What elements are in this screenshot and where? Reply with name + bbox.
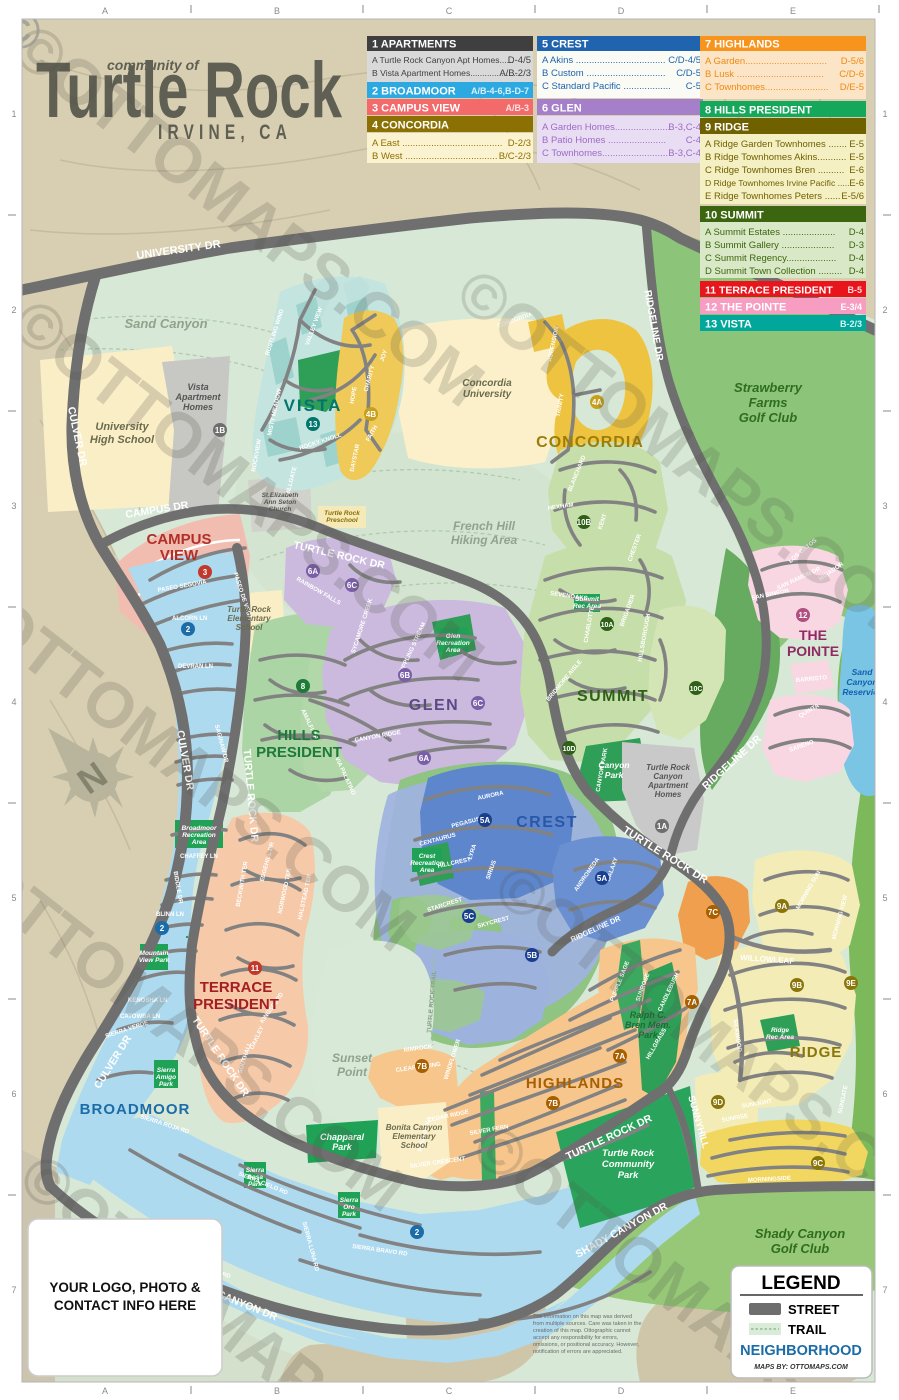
svg-text:RIDGE: RIDGE <box>790 1044 843 1061</box>
svg-text:5C: 5C <box>464 912 474 921</box>
svg-text:5A: 5A <box>480 816 490 825</box>
svg-text:A: A <box>102 6 108 16</box>
svg-text:Community: Community <box>602 1159 655 1170</box>
svg-text:9 RIDGE: 9 RIDGE <box>705 122 749 134</box>
svg-text:D: D <box>618 6 625 16</box>
svg-text:B Patio Homes ..............: B Patio Homes ...................... <box>542 135 666 146</box>
svg-text:3: 3 <box>203 568 208 577</box>
svg-text:11: 11 <box>251 964 260 973</box>
svg-text:ALCORN LN: ALCORN LN <box>172 616 207 622</box>
svg-text:B Ridge Townhomes Akins......: B Ridge Townhomes Akins........... <box>705 152 846 163</box>
svg-text:7: 7 <box>11 1285 16 1295</box>
svg-text:9E: 9E <box>846 979 856 988</box>
svg-text:A/B-3: A/B-3 <box>505 103 529 113</box>
svg-text:GLEN: GLEN <box>409 697 459 714</box>
svg-text:13 VISTA: 13 VISTA <box>705 319 752 331</box>
svg-text:Bonita Canyon: Bonita Canyon <box>386 1123 443 1132</box>
svg-text:D-2/3: D-2/3 <box>508 138 531 149</box>
svg-text:4 CONCORDIA: 4 CONCORDIA <box>372 120 449 132</box>
svg-text:2: 2 <box>11 305 16 315</box>
svg-text:B: B <box>274 1386 280 1396</box>
svg-text:1 APARTMENTS: 1 APARTMENTS <box>372 39 456 51</box>
svg-text:CHAFFEY LN: CHAFFEY LN <box>180 854 218 860</box>
svg-text:E-6: E-6 <box>849 165 864 176</box>
svg-text:5A: 5A <box>597 874 607 883</box>
svg-text:YOUR LOGO, PHOTO &: YOUR LOGO, PHOTO & <box>49 1280 201 1295</box>
svg-text:PRESIDENT: PRESIDENT <box>256 744 342 761</box>
svg-text:A Akins .....................: A Akins ................................… <box>542 55 666 66</box>
svg-text:5B: 5B <box>527 951 537 960</box>
svg-text:7C: 7C <box>708 908 718 917</box>
svg-text:HILLS: HILLS <box>277 727 320 744</box>
svg-text:LEGEND: LEGEND <box>761 1273 840 1294</box>
svg-text:A Garden.....................: A Garden............................... <box>705 56 827 67</box>
svg-text:D-4: D-4 <box>849 266 864 277</box>
svg-text:A: A <box>102 1386 108 1396</box>
svg-text:E-6: E-6 <box>849 178 864 189</box>
svg-text:Ridge: Ridge <box>771 1027 789 1034</box>
svg-text:Park: Park <box>605 770 625 780</box>
svg-text:9D: 9D <box>713 1098 723 1107</box>
svg-text:7 HIGHLANDS: 7 HIGHLANDS <box>705 39 780 51</box>
svg-text:B Vista Apartment Homes......: B Vista Apartment Homes.................… <box>372 68 518 78</box>
svg-text:C: C <box>446 6 453 16</box>
svg-text:Canyon: Canyon <box>653 772 682 781</box>
svg-text:10 SUMMIT: 10 SUMMIT <box>705 210 764 222</box>
svg-text:Hiking Area: Hiking Area <box>451 533 518 547</box>
svg-text:Bosa: Bosa <box>247 1174 263 1181</box>
svg-text:Elementary: Elementary <box>392 1132 436 1141</box>
svg-text:VIEW: VIEW <box>160 547 199 564</box>
svg-text:CONTACT INFO HERE: CONTACT INFO HERE <box>54 1298 196 1313</box>
svg-text:Sand Canyon: Sand Canyon <box>124 316 207 331</box>
svg-text:C-4: C-4 <box>686 135 701 146</box>
svg-text:12: 12 <box>799 611 808 620</box>
svg-text:THE: THE <box>799 627 827 643</box>
svg-text:NEIGHBORHOOD: NEIGHBORHOOD <box>740 1343 862 1359</box>
svg-text:E-5: E-5 <box>849 152 864 163</box>
svg-text:E: E <box>790 1386 796 1396</box>
svg-text:Park: Park <box>159 1081 173 1088</box>
svg-text:C/D-6: C/D-6 <box>839 69 864 80</box>
svg-text:notification of errors are app: notification of errors are appreciated. <box>533 1349 623 1355</box>
svg-text:2: 2 <box>160 924 165 933</box>
svg-text:Rec Area: Rec Area <box>573 603 601 610</box>
svg-text:Apartment: Apartment <box>647 781 688 790</box>
svg-text:C Townhomes..................: C Townhomes........................ <box>705 82 828 93</box>
svg-text:A/B-4-6,B-D-7: A/B-4-6,B-D-7 <box>471 86 529 96</box>
svg-text:Sierra: Sierra <box>246 1167 265 1174</box>
svg-text:6: 6 <box>11 1089 16 1099</box>
svg-text:omissions, or positional accur: omissions, or positional accuracy. Howev… <box>533 1342 640 1348</box>
svg-text:4: 4 <box>882 697 887 707</box>
svg-text:Park: Park <box>248 1181 262 1188</box>
svg-text:10B: 10B <box>577 518 592 527</box>
svg-text:2 BROADMOOR: 2 BROADMOOR <box>372 86 456 98</box>
svg-text:A Turtle Rock Canyon Apt Home: A Turtle Rock Canyon Apt Homes...... <box>372 55 514 65</box>
svg-text:3: 3 <box>882 501 887 511</box>
svg-text:A Summit Estates ............: A Summit Estates .................... <box>705 227 835 238</box>
svg-text:TERRACE: TERRACE <box>200 979 273 996</box>
svg-text:2: 2 <box>415 1228 420 1237</box>
svg-text:B Lusk .....................: B Lusk ................................. <box>705 69 824 80</box>
svg-text:Sand: Sand <box>852 667 874 677</box>
svg-text:VISTA: VISTA <box>284 396 343 415</box>
svg-text:1: 1 <box>11 109 16 119</box>
svg-text:Park: Park <box>342 1211 356 1218</box>
svg-text:6 GLEN: 6 GLEN <box>542 103 582 115</box>
svg-text:C Summit Regency.............: C Summit Regency................... <box>705 253 836 264</box>
svg-text:8: 8 <box>301 682 306 691</box>
svg-text:Elementary: Elementary <box>227 614 271 623</box>
svg-text:A Ridge Garden Townhomes ...: A Ridge Garden Townhomes ....... <box>705 139 847 150</box>
svg-text:D Summit Town Collection ....: D Summit Town Collection ......... <box>705 266 842 277</box>
svg-text:A/B-2/3: A/B-2/3 <box>499 68 531 79</box>
svg-text:9A: 9A <box>777 902 787 911</box>
svg-text:B-3,C-4: B-3,C-4 <box>668 148 701 159</box>
svg-text:5 CREST: 5 CREST <box>542 39 589 51</box>
svg-text:C Ridge Townhomes Bren .....: C Ridge Townhomes Bren .......... <box>705 165 844 176</box>
svg-text:MAPS BY: OTTOMAPS.COM: MAPS BY: OTTOMAPS.COM <box>754 1364 848 1371</box>
svg-text:7B: 7B <box>548 1099 558 1108</box>
svg-text:2: 2 <box>186 625 191 634</box>
svg-text:B/C-2/3: B/C-2/3 <box>499 151 531 162</box>
svg-text:6: 6 <box>882 1089 887 1099</box>
svg-text:7: 7 <box>882 1285 887 1295</box>
svg-text:C-5: C-5 <box>686 81 701 92</box>
svg-text:BLINN LN: BLINN LN <box>156 912 184 918</box>
svg-text:Crest: Crest <box>419 853 436 860</box>
svg-text:5: 5 <box>11 893 16 903</box>
svg-text:B Custom ...................: B Custom .............................. <box>542 68 666 79</box>
svg-text:10C: 10C <box>690 686 703 693</box>
svg-text:School: School <box>236 623 263 632</box>
svg-text:9B: 9B <box>792 981 802 990</box>
svg-text:D-5/6: D-5/6 <box>841 56 864 67</box>
svg-text:BROADMOOR: BROADMOOR <box>80 1101 191 1118</box>
svg-text:D/E-5: D/E-5 <box>840 82 864 93</box>
svg-text:7B: 7B <box>417 1062 427 1071</box>
svg-text:B-5: B-5 <box>847 285 862 295</box>
svg-text:E: E <box>790 6 796 16</box>
svg-text:4B: 4B <box>366 410 376 419</box>
svg-text:Canyon: Canyon <box>846 677 877 687</box>
svg-text:The information on this map wa: The information on this map was derived <box>533 1314 632 1320</box>
svg-text:C Townhomes..................: C Townhomes......................... <box>542 148 668 159</box>
svg-text:E-5/6: E-5/6 <box>841 191 864 202</box>
svg-text:D: D <box>618 1386 625 1396</box>
svg-text:CREST: CREST <box>516 814 578 831</box>
svg-text:STREET: STREET <box>788 1302 839 1317</box>
svg-text:CAMPUS: CAMPUS <box>146 531 211 548</box>
svg-text:B Summit Gallery ...........: B Summit Gallery .................... <box>705 240 834 251</box>
svg-text:B West .....................: B West .................................… <box>372 151 497 162</box>
svg-text:TRAIL: TRAIL <box>788 1322 826 1337</box>
svg-text:Summit: Summit <box>575 596 600 603</box>
svg-text:B: B <box>274 6 280 16</box>
svg-text:accept any responsibility for: accept any responsibility for errors, <box>533 1335 619 1341</box>
svg-text:2: 2 <box>882 305 887 315</box>
svg-text:E-3/4: E-3/4 <box>840 302 862 312</box>
svg-text:13: 13 <box>309 420 318 429</box>
svg-text:Sierra: Sierra <box>157 1067 176 1074</box>
svg-text:Sunset: Sunset <box>332 1051 373 1065</box>
svg-text:4: 4 <box>11 697 16 707</box>
svg-text:SUMMIT: SUMMIT <box>577 688 649 705</box>
svg-text:Park: Park <box>618 1170 639 1181</box>
svg-text:E Ridge Townhomes Peters ...: E Ridge Townhomes Peters ...... <box>705 191 841 202</box>
svg-text:Farms: Farms <box>748 395 787 410</box>
svg-text:Golf Club: Golf Club <box>771 1241 830 1256</box>
svg-text:Strawberry: Strawberry <box>734 380 803 395</box>
svg-text:Amigo: Amigo <box>155 1074 176 1081</box>
svg-text:8 HILLS PRESIDENT: 8 HILLS PRESIDENT <box>705 105 812 117</box>
svg-text:Area: Area <box>419 867 435 874</box>
svg-text:Recreation: Recreation <box>182 832 216 839</box>
svg-text:D-4: D-4 <box>849 253 864 264</box>
svg-text:HIGHLANDS: HIGHLANDS <box>526 1075 624 1092</box>
svg-text:D-4/5: D-4/5 <box>508 55 531 66</box>
svg-text:3 CAMPUS VIEW: 3 CAMPUS VIEW <box>372 103 461 115</box>
svg-text:C/D-4/5: C/D-4/5 <box>668 55 701 66</box>
svg-text:D Ridge Townhomes Irvine Paci: D Ridge Townhomes Irvine Pacific ...... <box>705 178 852 188</box>
svg-text:1: 1 <box>882 109 887 119</box>
svg-text:D-3: D-3 <box>849 240 864 251</box>
svg-text:Turtle Rock: Turtle Rock <box>602 1148 655 1159</box>
svg-text:C: C <box>446 1386 453 1396</box>
svg-text:Recreation: Recreation <box>410 860 444 867</box>
svg-text:6B: 6B <box>400 671 410 680</box>
svg-text:creation of this map. Ottograp: creation of this map. Ottographic cannot <box>533 1328 631 1334</box>
svg-text:School: School <box>401 1141 428 1150</box>
svg-text:Turtle Rock: Turtle Rock <box>646 763 690 772</box>
svg-text:C Standard Pacific .........: C Standard Pacific .................. <box>542 81 671 92</box>
svg-text:B-3,C-4: B-3,C-4 <box>668 122 701 133</box>
svg-text:from multiple sources. Care wa: from multiple sources. Care was taken in… <box>533 1321 642 1327</box>
svg-text:B-2/3: B-2/3 <box>840 319 862 329</box>
svg-text:10A: 10A <box>601 622 614 629</box>
svg-text:6A: 6A <box>419 754 429 763</box>
svg-text:Point: Point <box>337 1065 368 1079</box>
svg-text:A Garden Homes...............: A Garden Homes..................... <box>542 122 670 133</box>
svg-text:Shady Canyon: Shady Canyon <box>755 1226 845 1241</box>
svg-text:3: 3 <box>11 501 16 511</box>
svg-text:11 TERRACE PRESIDENT: 11 TERRACE PRESIDENT <box>705 285 833 297</box>
svg-text:10D: 10D <box>563 746 576 753</box>
svg-text:Golf Club: Golf Club <box>739 410 798 425</box>
svg-text:POINTE: POINTE <box>787 643 839 659</box>
svg-text:Homes: Homes <box>655 790 682 799</box>
svg-text:5: 5 <box>882 893 887 903</box>
svg-text:1A: 1A <box>657 822 667 831</box>
svg-text:A East ......................: A East .................................… <box>372 138 502 149</box>
svg-text:E-5: E-5 <box>849 139 864 150</box>
svg-text:C/D-5: C/D-5 <box>676 68 701 79</box>
svg-text:Canyon: Canyon <box>598 760 629 770</box>
svg-text:Turtle Rock: Turtle Rock <box>227 605 271 614</box>
svg-text:Area: Area <box>191 839 207 846</box>
svg-text:DEVRAN LN: DEVRAN LN <box>178 664 213 670</box>
svg-text:D-4: D-4 <box>849 227 864 238</box>
svg-text:French Hill: French Hill <box>453 519 516 533</box>
svg-text:6C: 6C <box>473 699 483 708</box>
svg-text:12 THE POINTE: 12 THE POINTE <box>705 302 786 314</box>
svg-text:Vista: Vista <box>187 382 208 392</box>
svg-text:7A: 7A <box>615 1052 625 1061</box>
